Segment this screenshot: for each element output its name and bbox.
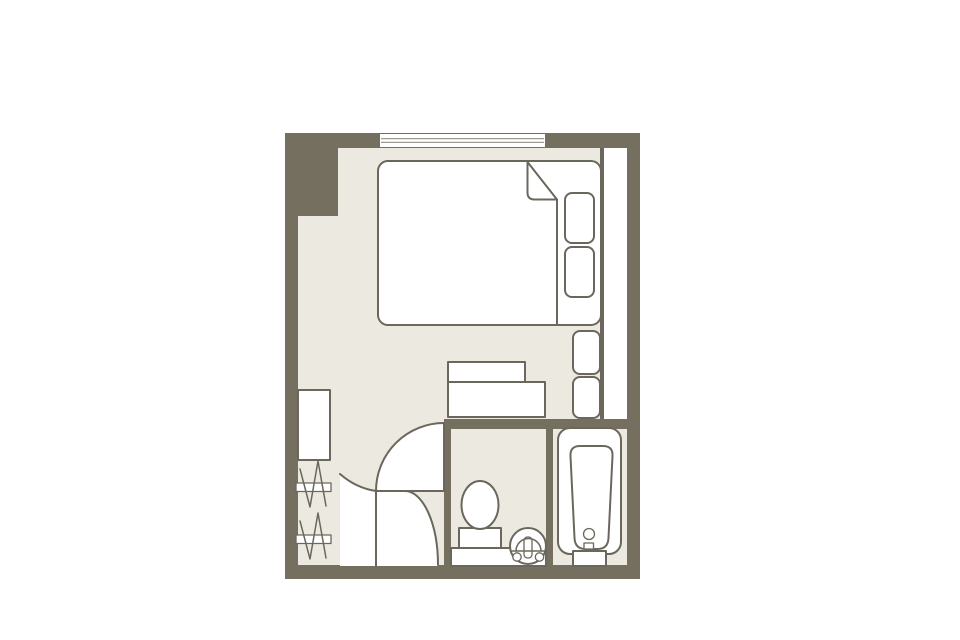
wall-corner-block (285, 133, 338, 216)
basin-knob (535, 553, 543, 561)
desk-lower (448, 382, 545, 417)
basin-faucet (524, 537, 532, 558)
basin-knob (513, 553, 521, 561)
bathtub-faucet-base (584, 543, 594, 549)
toilet-bowl (462, 481, 499, 529)
bathtub-step (573, 551, 606, 566)
wall-toilet-bath (546, 428, 553, 566)
bench-seat (573, 331, 600, 374)
toilet-tank (459, 528, 501, 548)
wall-bottom (285, 565, 640, 579)
double-bed (378, 161, 601, 325)
floor-plan (0, 0, 960, 640)
wall-right (627, 133, 640, 579)
pillow (565, 193, 594, 243)
wall-entry-toilet (444, 419, 451, 566)
window (380, 134, 545, 147)
luggage-rack (298, 390, 330, 460)
side-shaft (600, 148, 627, 419)
window-glass (380, 134, 545, 147)
desk-upper (448, 362, 525, 382)
bench-seat (573, 377, 600, 418)
bathtub-faucet (584, 529, 595, 540)
pillow (565, 247, 594, 297)
shaft-void (604, 148, 627, 419)
floor-plan-page (0, 0, 960, 640)
